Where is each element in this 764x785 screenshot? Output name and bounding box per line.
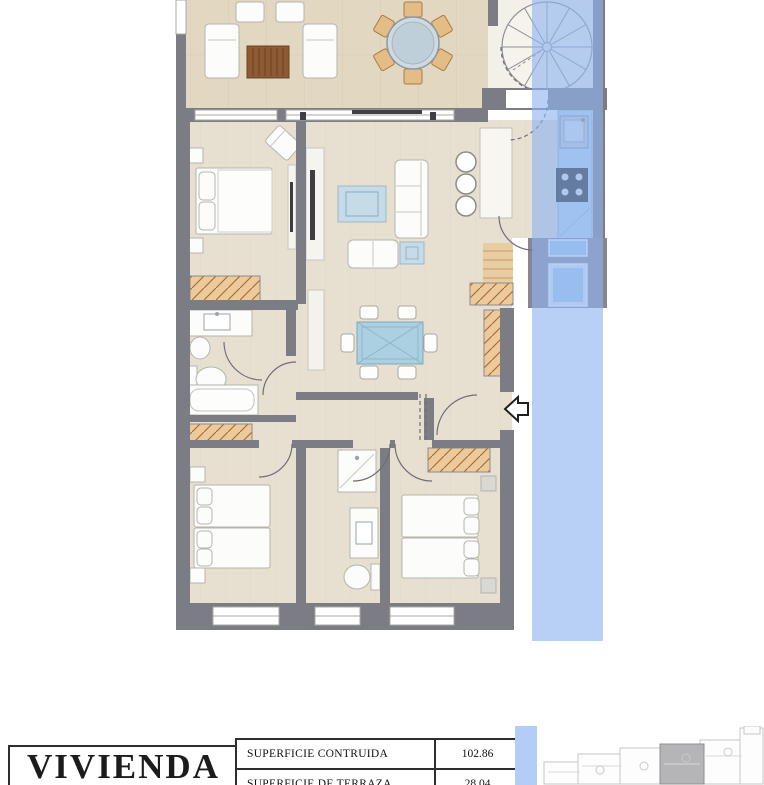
blue-overlay-band	[532, 0, 603, 641]
nightstand	[188, 238, 203, 253]
kitchen-island	[480, 128, 512, 218]
dining-table	[357, 322, 423, 364]
pantry-wood-floor	[483, 243, 513, 285]
plan-title-box: VIVIENDA	[8, 745, 239, 785]
floor-plan	[0, 0, 764, 785]
master-bed	[196, 168, 272, 234]
sideboard	[308, 290, 324, 370]
rug	[338, 186, 386, 222]
nightstand	[481, 578, 496, 593]
toilet-2	[344, 564, 380, 590]
area-table: SUPERFICIE CONTRUIDA 102.86 SUPERFICIE D…	[235, 738, 521, 785]
sofa	[395, 160, 428, 238]
ottoman	[400, 242, 424, 264]
area-value: 102.86	[436, 748, 519, 760]
area-label: SUPERFICIE DE TERRAZA	[237, 770, 436, 785]
nightstand	[190, 568, 205, 583]
tv-unit	[306, 148, 324, 260]
bathroom2-vanity	[350, 508, 378, 558]
nightstand	[481, 476, 496, 491]
terrace-coffee-table	[247, 46, 289, 78]
nightstand	[188, 148, 203, 163]
nightstand	[190, 467, 205, 482]
loveseat	[348, 240, 398, 268]
bedroom-tv-panel	[288, 165, 296, 249]
bar-stools	[456, 152, 476, 216]
shower	[338, 450, 376, 492]
area-value: 28.04	[436, 778, 519, 785]
bedroom3-beds	[402, 495, 479, 578]
bedroom2-beds	[194, 485, 270, 568]
plan-title: VIVIENDA	[27, 747, 220, 785]
bathtub	[186, 385, 258, 415]
bottom-blue-band	[515, 726, 537, 785]
area-label: SUPERFICIE CONTRUIDA	[237, 740, 436, 768]
key-plan	[540, 726, 764, 785]
table-row: SUPERFICIE DE TERRAZA 28.04	[237, 768, 519, 785]
bathroom1-vanity	[188, 310, 252, 336]
table-row: SUPERFICIE CONTRUIDA 102.86	[237, 740, 519, 768]
page: VIVIENDA SUPERFICIE CONTRUIDA 102.86 SUP…	[0, 0, 764, 785]
